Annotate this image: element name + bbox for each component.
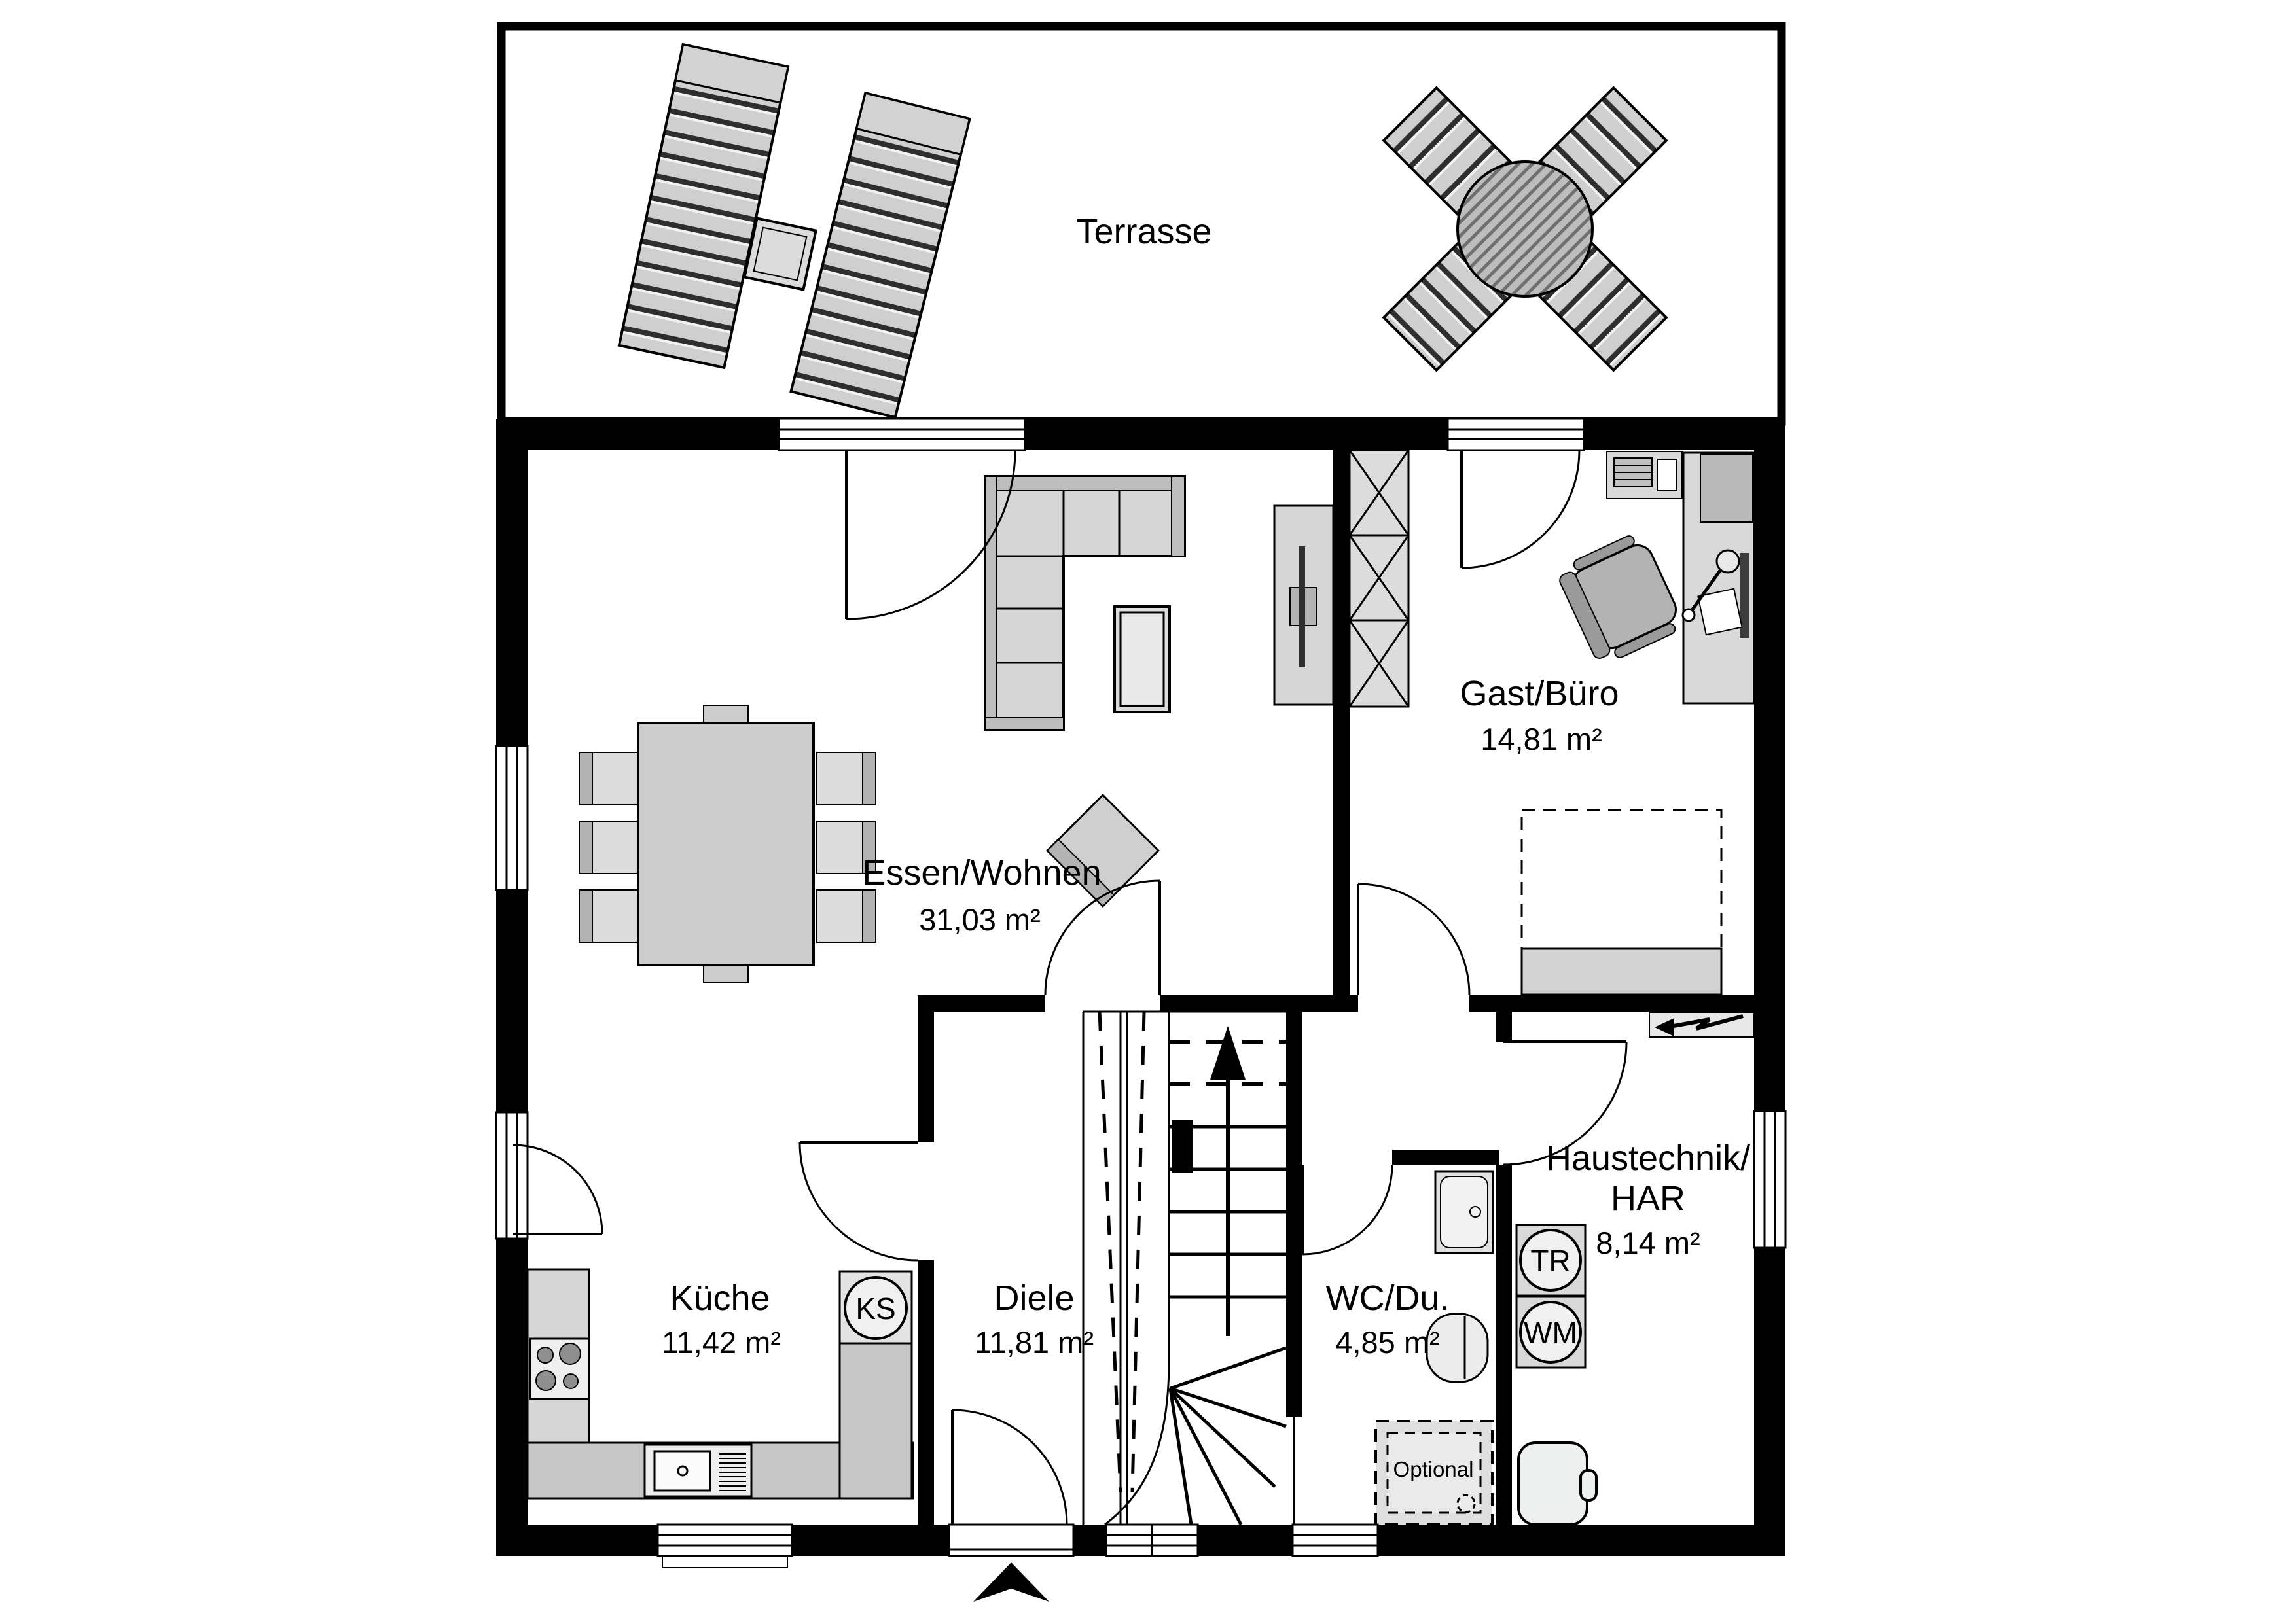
window-right-utility [1754, 1111, 1785, 1248]
fridge: KS [840, 1271, 912, 1343]
washbasin [1435, 1171, 1493, 1253]
laptop-icon [1698, 589, 1742, 635]
round-table [1458, 162, 1592, 296]
dining-chairs-left [579, 752, 638, 942]
floor-plan-page: KS Optional [0, 0, 2296, 1624]
wall-left-2 [496, 890, 528, 1112]
fridge-label: KS [855, 1292, 895, 1326]
office-chair [1554, 530, 1686, 667]
utility-fixtures: TR WM [1516, 1012, 1754, 1525]
front-door [949, 1410, 1073, 1556]
area-haustechnik: 8,14 m² [1596, 1226, 1700, 1260]
wall-bottom-1 [496, 1525, 658, 1556]
wall-wc-utility-2 [1496, 1165, 1512, 1525]
terrace-side-table [744, 218, 816, 289]
wall-right-2 [1754, 1248, 1785, 1556]
dryer-label: TR [1530, 1244, 1570, 1278]
kitchen-counter-right [840, 1343, 912, 1498]
window-wc [1293, 1525, 1378, 1556]
label-diele: Diele [994, 1279, 1074, 1318]
dryer: TR [1516, 1225, 1585, 1296]
area-gast-buero: 14,81 m² [1480, 722, 1602, 756]
desk [1683, 453, 1754, 703]
area-kueche: 11,42 m² [662, 1325, 781, 1360]
sideboard [1607, 451, 1682, 499]
wall-bottom-3 [1073, 1525, 1106, 1556]
wall-kitchen-hall-1 [918, 1012, 934, 1142]
optional-shower: Optional [1376, 1421, 1492, 1525]
bed-bench [1522, 949, 1721, 995]
tv-lowboard [1274, 506, 1333, 705]
wall-stair-right [1286, 1012, 1302, 1417]
label-gast-buero: Gast/Büro [1460, 674, 1619, 713]
guest-bed-optional [1522, 810, 1721, 995]
wall-top-2 [1025, 419, 1448, 450]
wall-bottom-4 [1198, 1525, 1293, 1556]
wardrobe-cabinet [1350, 450, 1408, 707]
floor-plan-drawing: KS Optional [0, 0, 2296, 1624]
staircase [1083, 1012, 1294, 1525]
loft-hatch [1649, 1012, 1754, 1037]
cooktop [530, 1339, 589, 1399]
dining-chairs-right [817, 752, 876, 942]
washing-machine: WM [1516, 1297, 1585, 1368]
wall-living-hall-3 [1469, 995, 1785, 1012]
label-kueche: Küche [670, 1279, 770, 1318]
area-wc-du: 4,85 m² [1335, 1325, 1439, 1360]
dining-table [638, 723, 814, 965]
wall-left-1 [496, 419, 528, 746]
label-haustechnik-2: HAR [1611, 1179, 1685, 1218]
window-stair [1106, 1525, 1198, 1556]
desk-lamp-icon [1717, 550, 1739, 573]
window-left [496, 746, 528, 890]
wall-wc-top [1392, 1150, 1499, 1165]
wall-bottom-5 [1378, 1525, 1785, 1556]
stair-up-arrow-icon [1210, 1026, 1246, 1080]
terrace-door-guest [1448, 419, 1584, 568]
window-kitchen [658, 1525, 792, 1568]
wall-left-3 [496, 1239, 528, 1556]
door-kitchen [800, 1142, 918, 1260]
coffee-table [1115, 607, 1170, 712]
wall-top-1 [497, 419, 779, 450]
wall-living-guest [1333, 450, 1350, 1012]
wall-kitchen-hall-2 [918, 1260, 934, 1525]
area-essen-wohnen: 31,03 m² [919, 902, 1040, 937]
label-wc-du: WC/Du. [1326, 1279, 1450, 1318]
door-hall-guest [1358, 884, 1469, 995]
label-essen-wohnen: Essen/Wohnen [862, 853, 1101, 892]
optional-label: Optional [1393, 1457, 1474, 1481]
kitchen-sink [645, 1445, 751, 1496]
area-diele: 11,81 m² [975, 1325, 1094, 1360]
entrance-arrow-icon [973, 1562, 1049, 1602]
wall-wc-utility-1 [1496, 1012, 1512, 1042]
garden-door-left [496, 1112, 602, 1239]
wall-stair-post [1172, 1120, 1193, 1173]
water-heater [1518, 1443, 1596, 1525]
washing-machine-label: WM [1524, 1316, 1577, 1350]
wall-living-hall-1 [918, 995, 1045, 1012]
door-wc [1302, 1165, 1392, 1254]
label-terrasse: Terrasse [1076, 212, 1211, 251]
wall-living-hall-2 [1160, 995, 1358, 1012]
wall-bottom-2 [792, 1525, 949, 1556]
label-haustechnik-1: Haustechnik/ [1546, 1139, 1750, 1178]
dining-set [579, 705, 876, 983]
